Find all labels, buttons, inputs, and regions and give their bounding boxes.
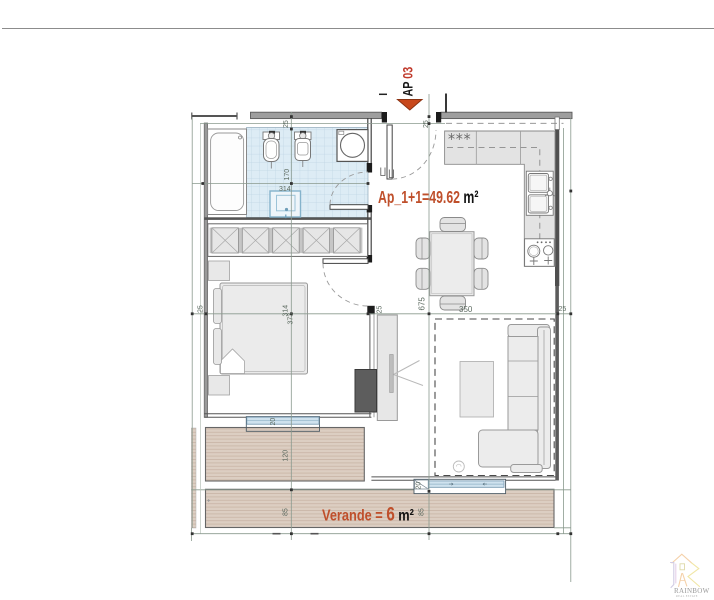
- svg-text:85: 85: [283, 508, 290, 516]
- svg-text:373: 373: [288, 313, 295, 325]
- svg-text:170: 170: [284, 169, 291, 181]
- svg-text:314: 314: [279, 186, 291, 193]
- svg-text:AP 03: AP 03: [400, 67, 415, 97]
- svg-text:120: 120: [283, 450, 290, 462]
- svg-text:350: 350: [459, 305, 473, 314]
- svg-text:RAINBOW: RAINBOW: [674, 587, 710, 595]
- svg-text:20: 20: [416, 482, 423, 490]
- svg-text:675: 675: [418, 297, 427, 311]
- svg-text:25: 25: [283, 120, 290, 128]
- svg-text:25: 25: [377, 306, 384, 314]
- svg-text:25: 25: [423, 120, 430, 128]
- svg-text:REAL ESTATE: REAL ESTATE: [676, 595, 698, 598]
- svg-text:25: 25: [559, 306, 567, 313]
- svg-text:20: 20: [270, 418, 277, 426]
- svg-text:25: 25: [198, 305, 205, 313]
- svg-text:85: 85: [419, 508, 426, 516]
- svg-text:Ap_1+1=49.62 m²: Ap_1+1=49.62 m²: [378, 188, 478, 208]
